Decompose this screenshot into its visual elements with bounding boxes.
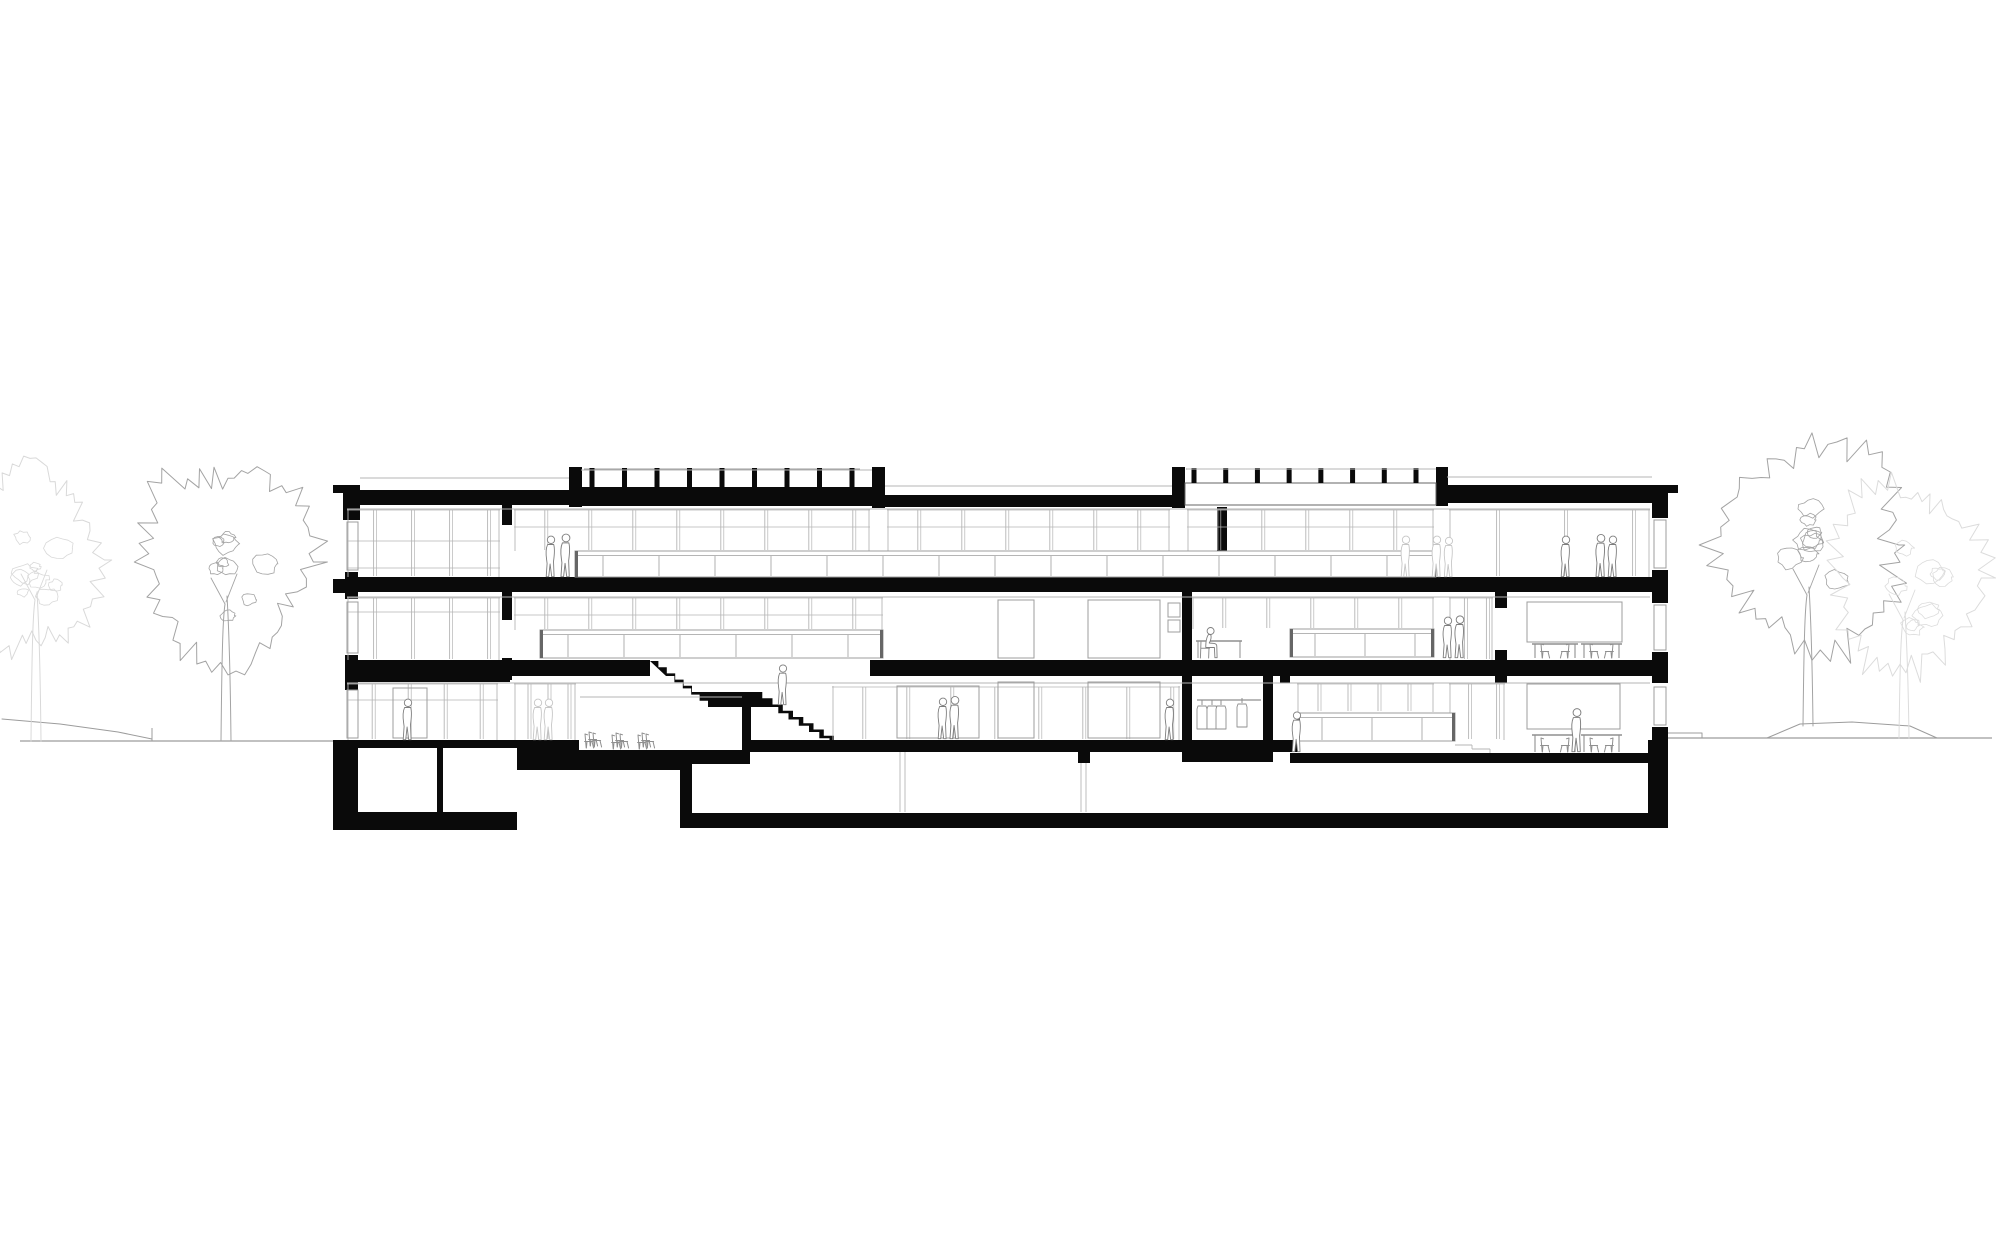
- person-figure: [950, 696, 959, 738]
- desk: [1196, 641, 1242, 658]
- tree-far-right-faint: [1826, 472, 1995, 738]
- person-figure: [561, 534, 570, 577]
- table-with-chairs: [1532, 735, 1578, 752]
- table-with-chairs: [1581, 644, 1622, 658]
- clothes-rail: [1197, 698, 1261, 729]
- person-figure: [1596, 534, 1605, 576]
- table-with-chairs: [1532, 644, 1578, 658]
- architectural-section-drawing: [0, 0, 2000, 1245]
- person-figure: [1608, 536, 1617, 577]
- person-figure: [1455, 616, 1464, 658]
- person-figure: [778, 665, 786, 705]
- person-figure: [533, 699, 542, 740]
- tree-far-left-faint: [0, 456, 112, 741]
- person-figure: [1443, 617, 1452, 658]
- ground-plane: [2, 719, 1992, 741]
- person-figure: [403, 699, 412, 740]
- person-figure: [1561, 536, 1570, 577]
- person-figure: [938, 698, 947, 739]
- tree-left: [134, 467, 327, 741]
- person-figure: [546, 536, 555, 577]
- tree-right: [1699, 433, 1906, 726]
- person-figure: [1165, 699, 1174, 740]
- person-figure: [1200, 628, 1217, 659]
- person-figure: [1444, 537, 1452, 576]
- table-with-chairs: [1581, 735, 1622, 752]
- person-figure: [1572, 709, 1581, 752]
- section-drawing-canvas: [0, 0, 2000, 1245]
